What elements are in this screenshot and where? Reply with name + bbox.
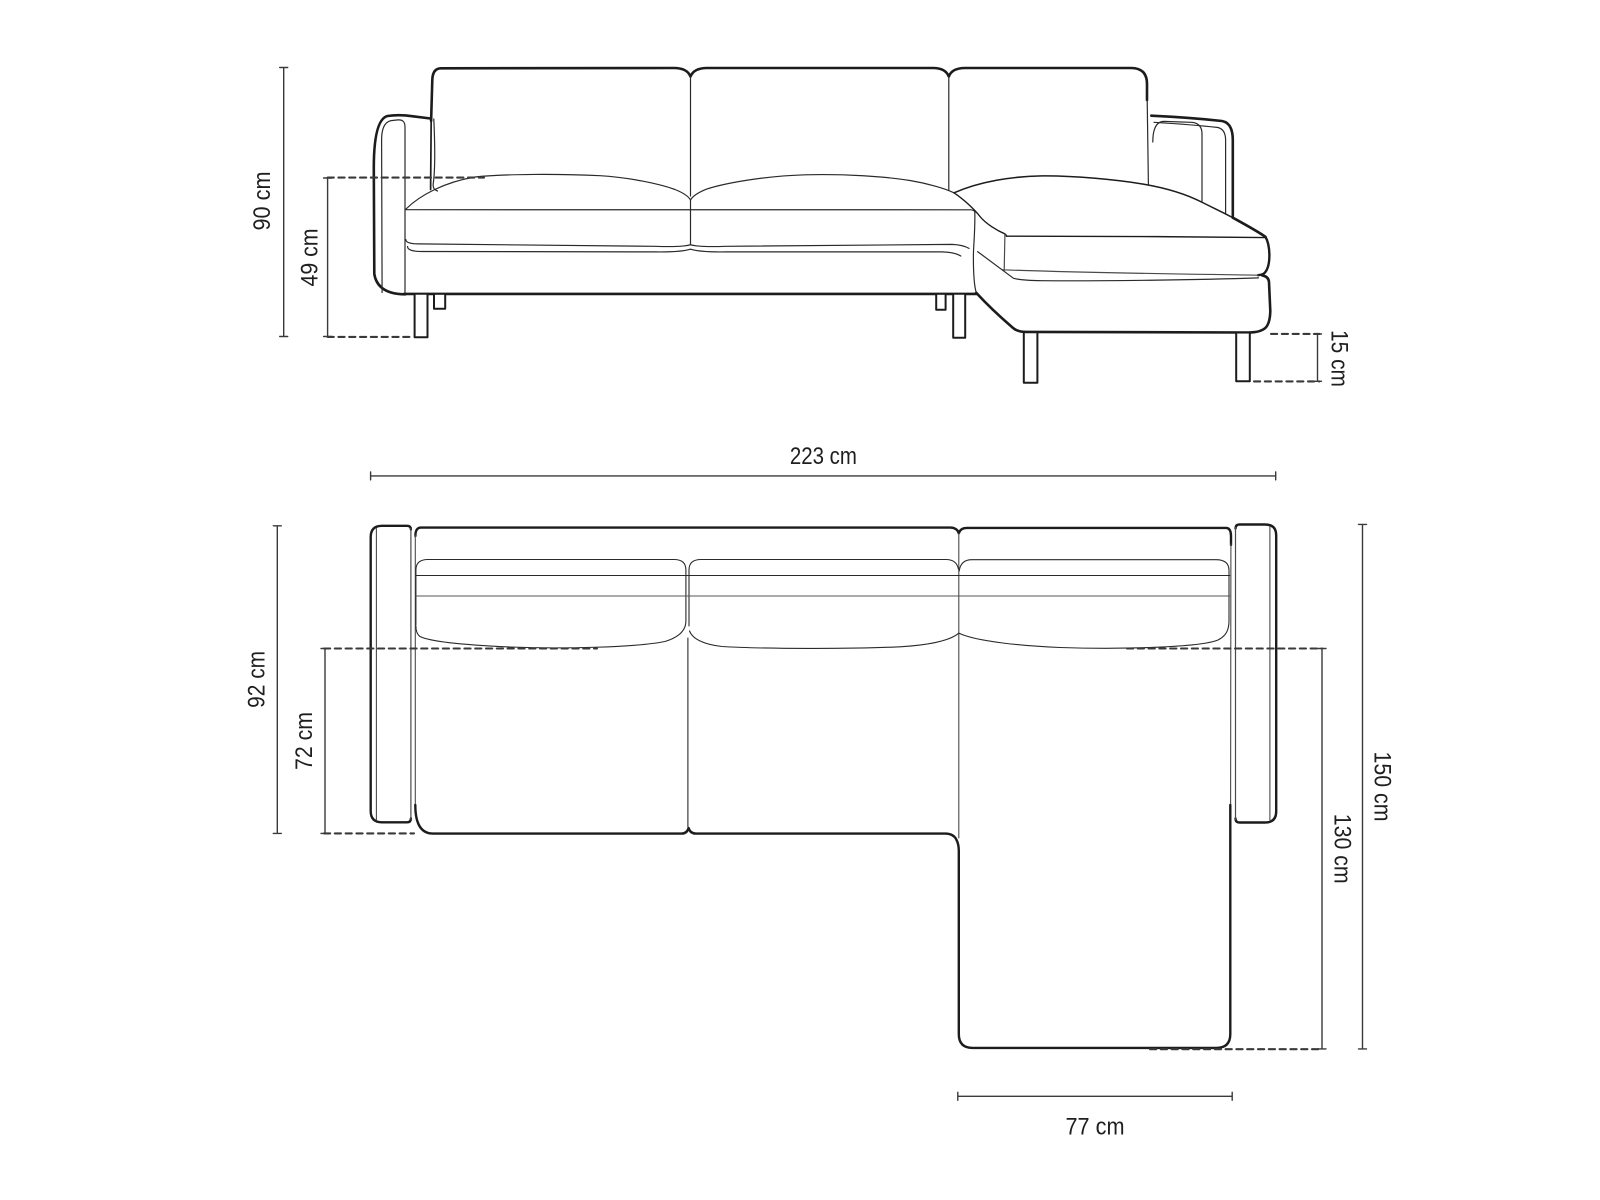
svg-text:92 cm: 92 cm [244, 651, 271, 708]
svg-text:15 cm: 15 cm [1325, 330, 1352, 387]
svg-text:72 cm: 72 cm [291, 712, 318, 770]
svg-text:150 cm: 150 cm [1369, 752, 1396, 822]
svg-text:77 cm: 77 cm [1066, 1114, 1125, 1141]
svg-text:49 cm: 49 cm [297, 229, 324, 287]
svg-text:130 cm: 130 cm [1329, 814, 1356, 884]
svg-text:90 cm: 90 cm [249, 172, 276, 231]
svg-text:223 cm: 223 cm [790, 443, 857, 470]
